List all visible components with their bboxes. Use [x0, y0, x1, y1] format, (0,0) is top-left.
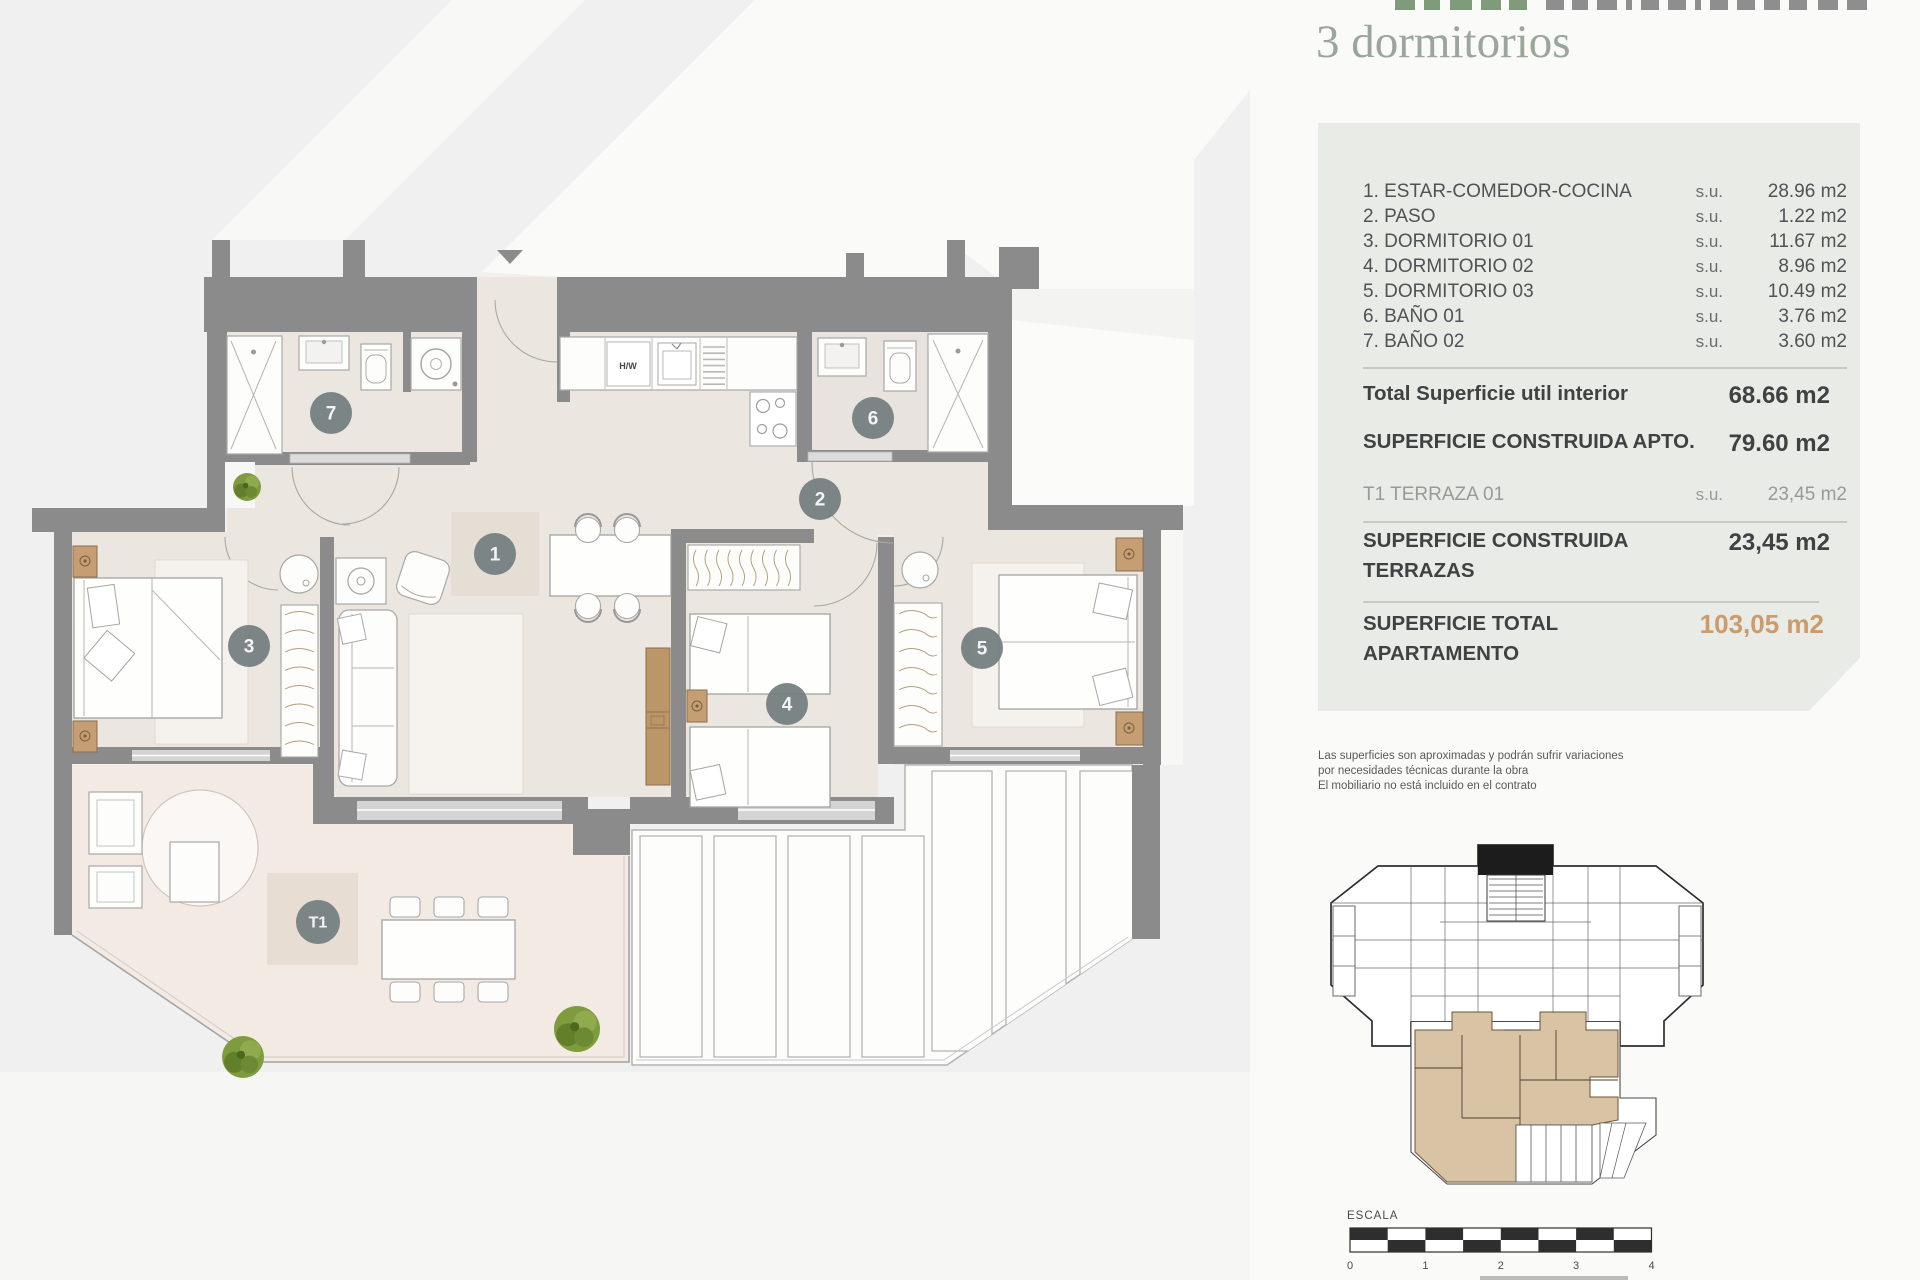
svg-text:11.67 m2: 11.67 m2 [1769, 231, 1847, 252]
svg-text:4: 4 [1648, 1260, 1654, 1272]
svg-text:1: 1 [490, 545, 501, 566]
svg-text:6: 6 [868, 409, 879, 430]
svg-text:El mobiliario no está incluido: El mobiliario no está incluido en el con… [1318, 780, 1537, 792]
svg-text:7: 7 [326, 404, 337, 425]
svg-text:APARTAMENTO: APARTAMENTO [1363, 642, 1519, 665]
svg-text:3: 3 [244, 637, 255, 658]
svg-text:3 dormitorios: 3 dormitorios [1316, 16, 1571, 68]
svg-text:23,45 m2: 23,45 m2 [1729, 529, 1830, 556]
svg-text:Las superficies son aproximada: Las superficies son aproximadas y podrán… [1318, 750, 1624, 762]
svg-text:3: 3 [1573, 1260, 1579, 1272]
svg-text:s.u.: s.u. [1696, 232, 1723, 251]
svg-text:3.60 m2: 3.60 m2 [1778, 331, 1847, 352]
svg-text:23,45 m2: 23,45 m2 [1768, 484, 1847, 505]
svg-text:s.u.: s.u. [1696, 207, 1723, 226]
svg-text:1.22 m2: 1.22 m2 [1778, 206, 1847, 227]
svg-text:SUPERFICIE CONSTRUIDA: SUPERFICIE CONSTRUIDA [1363, 529, 1629, 552]
svg-text:4: 4 [782, 695, 793, 716]
svg-text:1: 1 [1422, 1260, 1428, 1272]
svg-text:68.66 m2: 68.66 m2 [1729, 382, 1830, 409]
svg-text:ESCALA: ESCALA [1347, 1210, 1398, 1222]
svg-text:2: 2 [815, 490, 826, 511]
svg-text:10.49 m2: 10.49 m2 [1768, 281, 1847, 302]
svg-text:Total Superficie util interior: Total Superficie util interior [1363, 382, 1628, 405]
svg-text:6. BAÑO 01: 6. BAÑO 01 [1363, 305, 1464, 327]
svg-text:SUPERFICIE CONSTRUIDA APTO.: SUPERFICIE CONSTRUIDA APTO. [1363, 430, 1695, 453]
svg-text:s.u.: s.u. [1696, 307, 1723, 326]
svg-text:s.u.: s.u. [1696, 332, 1723, 351]
svg-text:2. PASO: 2. PASO [1363, 206, 1436, 227]
svg-text:8.96 m2: 8.96 m2 [1778, 256, 1847, 277]
svg-text:s.u.: s.u. [1696, 257, 1723, 276]
svg-text:103,05 m2: 103,05 m2 [1700, 609, 1824, 639]
svg-text:H/W: H/W [619, 361, 637, 371]
svg-text:1. ESTAR-COMEDOR-COCINA: 1. ESTAR-COMEDOR-COCINA [1363, 181, 1632, 202]
svg-text:TERRAZAS: TERRAZAS [1363, 559, 1475, 582]
svg-text:0: 0 [1347, 1260, 1353, 1272]
svg-text:s.u.: s.u. [1696, 182, 1723, 201]
svg-text:SUPERFICIE TOTAL: SUPERFICIE TOTAL [1363, 612, 1558, 635]
svg-text:3.76 m2: 3.76 m2 [1778, 306, 1847, 327]
svg-text:T1 TERRAZA 01: T1 TERRAZA 01 [1363, 484, 1504, 505]
svg-text:2: 2 [1498, 1260, 1504, 1272]
svg-text:s.u.: s.u. [1696, 485, 1723, 504]
svg-text:3. DORMITORIO 01: 3. DORMITORIO 01 [1363, 231, 1534, 252]
svg-text:28.96 m2: 28.96 m2 [1768, 181, 1847, 202]
svg-text:79.60 m2: 79.60 m2 [1729, 430, 1830, 457]
svg-text:5: 5 [977, 639, 988, 660]
svg-text:4. DORMITORIO 02: 4. DORMITORIO 02 [1363, 256, 1534, 277]
svg-text:s.u.: s.u. [1696, 282, 1723, 301]
svg-text:7. BAÑO 02: 7. BAÑO 02 [1363, 330, 1464, 352]
svg-text:por necesidades técnicas duran: por necesidades técnicas durante la obra [1318, 765, 1529, 777]
svg-text:T1: T1 [309, 915, 328, 932]
svg-text:5. DORMITORIO 03: 5. DORMITORIO 03 [1363, 281, 1534, 302]
